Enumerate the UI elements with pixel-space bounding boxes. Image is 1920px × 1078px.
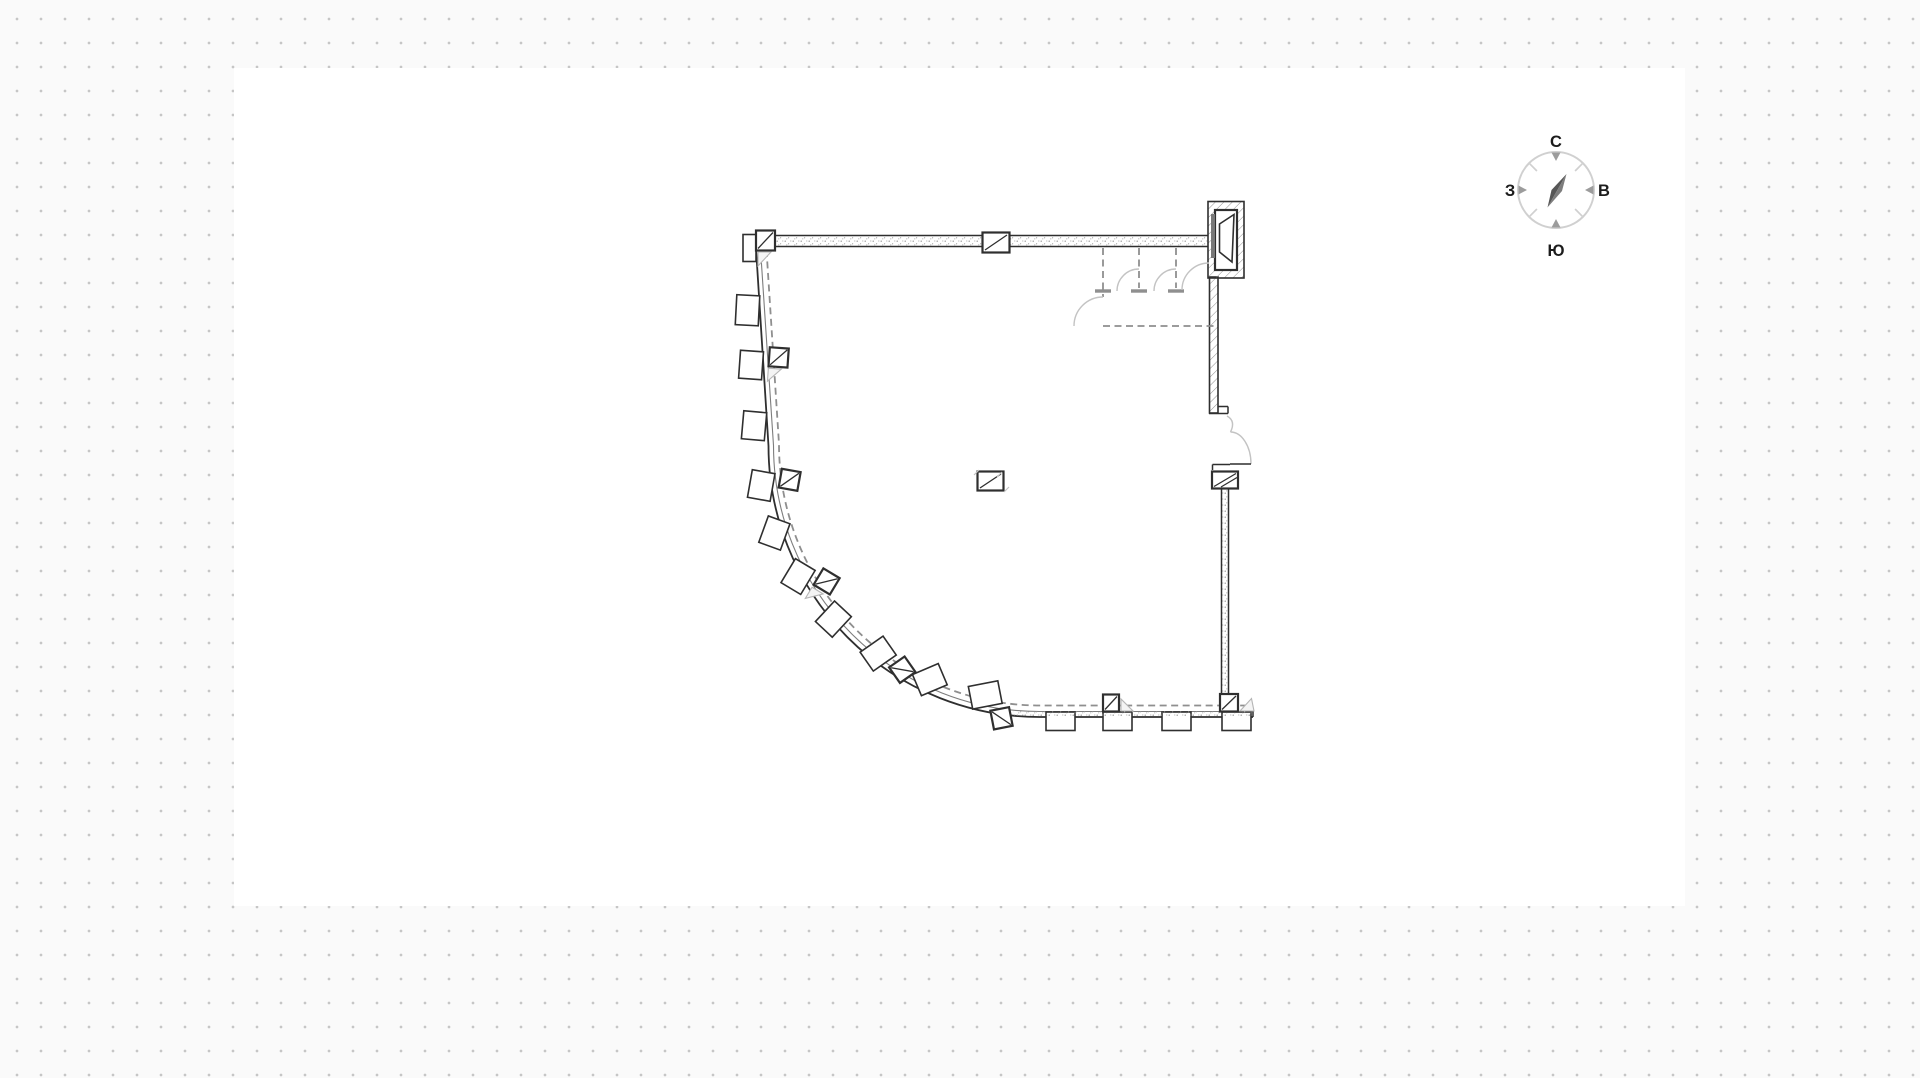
east-door-opening bbox=[1212, 416, 1251, 489]
compass-tick-west bbox=[1519, 186, 1528, 195]
facade-station bbox=[968, 680, 1012, 733]
compass-label-north: С bbox=[1550, 133, 1562, 151]
editor-stage: С Ю З В bbox=[0, 0, 1920, 1078]
compass-label-east: В bbox=[1598, 182, 1610, 200]
northwest-corner-assembly bbox=[743, 231, 775, 267]
compass-rose-icon: С Ю З В bbox=[1505, 133, 1610, 260]
corner-mullion bbox=[743, 235, 756, 262]
dashed-partitions bbox=[1074, 248, 1216, 326]
door-swing-small-arc bbox=[1227, 416, 1233, 432]
center-column bbox=[974, 470, 1009, 492]
door-jamb-bottom bbox=[1213, 465, 1231, 471]
compass-label-south: Ю bbox=[1547, 242, 1564, 260]
stall-door-arc-2 bbox=[1154, 269, 1176, 291]
elevator-shaft bbox=[1208, 202, 1244, 279]
east-wall-upper bbox=[1209, 277, 1228, 414]
floor-plan[interactable] bbox=[735, 202, 1254, 733]
east-wall-upper-hatched bbox=[1210, 277, 1219, 413]
north-wall-column bbox=[983, 233, 1010, 253]
east-wall-lower-fill bbox=[1222, 489, 1229, 694]
compass-tick-south bbox=[1552, 219, 1561, 228]
compass-tick-north bbox=[1552, 153, 1561, 162]
south-columns bbox=[1103, 694, 1254, 712]
door-swing-arc bbox=[1231, 432, 1252, 464]
facade-offset-dashed-line bbox=[767, 250, 1251, 706]
stall-door-arc-1 bbox=[1117, 269, 1139, 291]
compass-label-west: З bbox=[1505, 182, 1515, 200]
facade-inner-line bbox=[761, 249, 1254, 712]
facade-station bbox=[735, 295, 760, 326]
compass-tick-east bbox=[1585, 186, 1594, 195]
south-wall bbox=[1013, 712, 1253, 731]
corner-gusset bbox=[758, 252, 771, 266]
facade-station bbox=[912, 664, 947, 696]
stall-door-arc-3 bbox=[1182, 263, 1209, 290]
facade-station bbox=[759, 516, 790, 550]
facade-station bbox=[741, 411, 766, 441]
drawing-overlay: С Ю З В bbox=[0, 0, 1920, 1078]
stall-door-arc-large bbox=[1074, 297, 1103, 326]
south-wall-band bbox=[1013, 712, 1253, 718]
east-wall-lower bbox=[1222, 489, 1229, 694]
shaft-threshold-bar bbox=[1211, 214, 1215, 258]
